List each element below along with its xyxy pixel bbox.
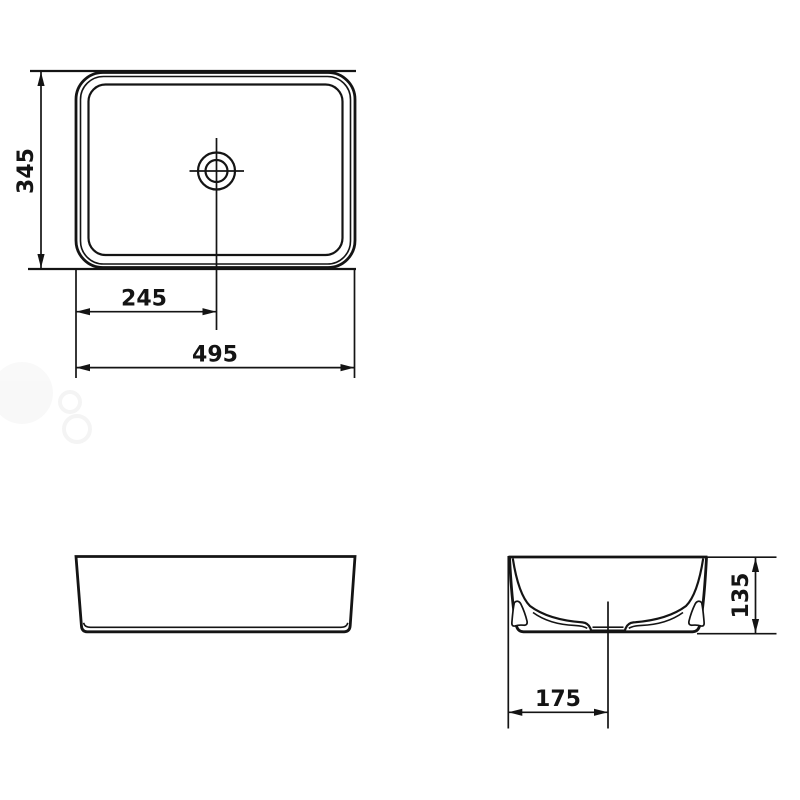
sink-technical-drawing-page: 345 245 495 — [0, 0, 800, 800]
arrowhead-right-icon — [341, 364, 355, 371]
arrowhead-left-icon — [508, 709, 522, 716]
dimension-495: 495 — [76, 343, 355, 372]
arrowhead-up-icon — [752, 558, 759, 572]
arrowhead-up-icon — [37, 72, 44, 86]
dim-label-height: 345 — [14, 148, 39, 194]
arrowhead-right-icon — [594, 709, 608, 716]
side-view: 135 175 — [508, 556, 776, 729]
top-view: 345 245 495 — [14, 71, 356, 378]
front-view — [76, 557, 355, 632]
watermark-blob — [0, 362, 53, 424]
arrowhead-right-icon — [203, 308, 217, 315]
dim-label-height: 135 — [729, 573, 754, 619]
dim-label-drain-offset: 245 — [121, 287, 167, 312]
watermark-ring — [60, 392, 80, 412]
basin-outer-edge — [76, 73, 355, 268]
watermark-ring — [64, 416, 90, 442]
sink-technical-drawing: 345 245 495 — [0, 0, 800, 800]
dimension-135: 135 — [729, 558, 759, 633]
arrowhead-down-icon — [37, 254, 44, 268]
front-outline — [76, 557, 355, 632]
dim-label-width: 495 — [192, 343, 238, 368]
dimension-345: 345 — [14, 72, 45, 268]
dim-label-drain-offset: 175 — [535, 687, 581, 712]
arrowhead-left-icon — [76, 308, 90, 315]
dimension-245: 245 — [76, 287, 217, 316]
arrowhead-down-icon — [752, 619, 759, 633]
dimension-175: 175 — [508, 687, 608, 716]
arrowhead-left-icon — [76, 364, 90, 371]
